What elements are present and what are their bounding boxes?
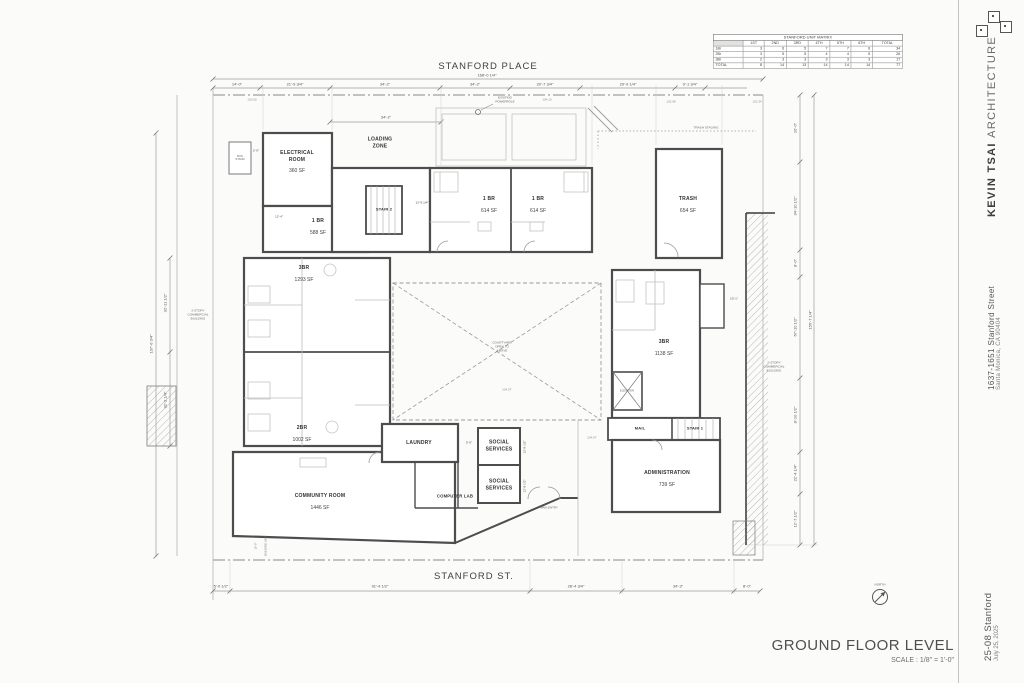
project-number: 25-08 Stanford [983, 593, 994, 661]
dim-building-line: 10'-0" [254, 542, 257, 549]
spot-elevation-5: 104.07' [502, 388, 512, 392]
room-3br-left-name: 3BR [295, 265, 314, 272]
dim-top-1: 14'-0" [232, 83, 242, 88]
room-2br: 2BR 1002 SF [293, 425, 312, 443]
sheet-titleblock: GROUND FLOOR LEVEL SCALE : 1/8" = 1'-0" [772, 637, 954, 664]
room-electrical-name: ELECTRICAL ROOM [274, 150, 320, 163]
room-social-services-1-name: SOCIAL SERVICES [484, 440, 514, 453]
spot-elevation-4: 102.34 [752, 100, 761, 104]
room-3br-left: 3BR 1293 SF [295, 265, 314, 283]
matrix-cell: 8 [743, 63, 764, 69]
dim-stair2-width: 12'-9 1/4" [415, 201, 428, 205]
dim-bottom-4: 34'-3" [673, 585, 683, 590]
dim-bottom-5: 8'-0" [743, 585, 751, 590]
dim-right-5: 8'-10 1/2" [794, 407, 799, 424]
matrix-cell: 14 [851, 63, 872, 69]
room-2br-area: 1002 SF [293, 437, 312, 444]
spot-elevation-2: 104.10 [542, 98, 551, 102]
firm-name: KEVIN TSAI ARCHITECTURE [982, 36, 1000, 217]
matrix-cell: 14 [764, 63, 786, 69]
dim-right-1: 10'-0" [794, 123, 799, 133]
dim-right-2: 34'-10 1/2" [794, 196, 799, 215]
firm-logo-icon [1000, 21, 1012, 33]
label-courtyard: COURTYARD OPEN TO ABOVE [491, 341, 513, 353]
street-label-stanford-st: STANFORD ST. [434, 571, 514, 583]
label-commercial-left: 2-STORY COMMERCIAL BUILDING [185, 309, 211, 321]
dim-left-1: 32'-11 1/2" [164, 294, 169, 313]
project-address: 1637-1651 Stanford Street Santa Monica, … [987, 286, 1002, 390]
dim-social-2: 12'-8 1/2" [523, 479, 527, 492]
dim-top-4: 34'-2" [470, 83, 480, 88]
dim-right-overall: 155'-7 1/4" [809, 310, 814, 329]
room-1br-a: 1 BR 588 SF [310, 218, 326, 236]
room-community: COMMUNITY ROOM 1446 SF [294, 493, 346, 511]
room-1br-b: 1 BR 614 SF [481, 196, 497, 214]
room-social-services-2-name: SOCIAL SERVICES [484, 479, 514, 492]
room-laundry-name: LAUNDRY [406, 440, 432, 447]
room-stair2-name: STAIR 2 [376, 207, 392, 212]
firm-name-bold: KEVIN TSAI [986, 142, 998, 217]
firm-name-light: ARCHITECTURE [986, 36, 998, 138]
project-address-line1: 1637-1651 Stanford Street [987, 286, 996, 390]
label-building-line: BUILDING LINE [264, 536, 267, 556]
room-1br-b-area: 614 SF [481, 208, 497, 215]
room-computer-lab: COMPUTER LAB [434, 494, 477, 501]
room-mail: MAIL [633, 426, 646, 433]
dim-right-4: 67'-10 1/2" [794, 317, 799, 336]
dim-top-2: 21'-9 3/4" [287, 83, 304, 88]
drawing-sheet: STANFORD PLACE STANFORD ST. 14'-0" 21'-9… [0, 0, 1024, 683]
matrix-row-total: TOTAL 8 14 13 14 14 14 77 [713, 63, 902, 69]
dim-right-6: 22'-4 1/4" [794, 465, 799, 482]
matrix-cell: 77 [872, 63, 902, 69]
room-3br-right-name: 3BR [655, 339, 674, 346]
dim-bus-stand: 2'-0" [253, 149, 259, 153]
room-1br-a-area: 588 SF [310, 230, 326, 237]
room-stair1-name: STAIR 1 [687, 426, 703, 431]
dim-top-secondary: 34'-2" [381, 116, 391, 121]
dim-top-3: 34'-2" [380, 83, 390, 88]
room-1br-b-name: 1 BR [481, 196, 497, 203]
room-electrical: ELECTRICAL ROOM 360 SF [274, 150, 320, 175]
room-1br-c-name: 1 BR [530, 196, 546, 203]
room-laundry: LAUNDRY [406, 440, 432, 447]
room-computer-lab-name: COMPUTER LAB [437, 494, 473, 500]
room-social-services-2: SOCIAL SERVICES [484, 479, 514, 492]
dim-left-2: 32'-2 1/4" [164, 392, 169, 409]
room-community-name: COMMUNITY ROOM [294, 493, 346, 500]
label-powerpole: EXISTING POWERPOLE [493, 96, 517, 104]
dim-electrical-width: 12'-4" [275, 215, 283, 219]
dim-bottom-1: 5'-0 1/2" [214, 585, 229, 590]
north-arrow-label: NORTH [875, 583, 886, 587]
project-address-line2: Santa Monica, CA 90404 [996, 286, 1002, 390]
matrix-cell: 14 [808, 63, 829, 69]
spot-elevation-6: 104.67' [587, 436, 597, 440]
dim-left-overall: 137'-6 3/4" [150, 334, 155, 353]
dim-right-7: 12'-7 1/2" [794, 511, 799, 528]
room-administration: ADMINISTRATION 739 SF [644, 470, 690, 488]
room-3br-right: 3BR 1138 SF [655, 339, 674, 357]
room-1br-c: 1 BR 614 SF [530, 196, 546, 214]
room-trash-name: TRASH [679, 196, 697, 203]
room-1br-c-area: 614 SF [530, 208, 546, 215]
street-label-stanford-place: STANFORD PLACE [438, 61, 537, 73]
project-date: July 25, 2025 [994, 593, 1000, 661]
room-1br-a-name: 1 BR [310, 218, 326, 225]
room-loading-zone-name: LOADING ZONE [363, 137, 397, 150]
room-3br-right-area: 1138 SF [655, 351, 674, 358]
label-commercial-right: 2-STORY COMMERCIAL BUILDING [761, 361, 787, 373]
room-mail-name: MAIL [635, 426, 645, 431]
dim-corridor: 5'-0" [466, 441, 472, 445]
dim-top-7: 9'-1 3/4" [683, 83, 698, 88]
spot-elevation-3: 102.98 [666, 100, 675, 104]
room-stair2: STAIR 2 [374, 207, 394, 214]
unit-matrix-table: STANFORD UNIT MATRIX 1ST 2ND 3RD 4TH 5TH… [713, 34, 903, 69]
label-trash-staging: TRASH STAGING [693, 126, 718, 130]
dim-top-overall: 168'-0 1/4" [477, 74, 496, 79]
label-main-entry: MAIN ENTRY [540, 506, 558, 510]
dim-top-5: 20'-7 3/4" [537, 83, 554, 88]
matrix-cell: 14 [830, 63, 851, 69]
room-3br-left-area: 1293 SF [295, 277, 314, 284]
room-electrical-area: 360 SF [274, 168, 320, 175]
room-administration-area: 739 SF [644, 482, 690, 489]
room-trash: TRASH 654 SF [679, 196, 697, 214]
matrix-cell: TOTAL [713, 63, 743, 69]
dim-bottom-3: 28'-4 3/4" [568, 585, 585, 590]
room-administration-name: ADMINISTRATION [644, 470, 690, 477]
dim-top-6: 29'-9 1/4" [620, 83, 637, 88]
label-elevator: ELEVATOR [620, 389, 634, 392]
sheet-scale: SCALE : 1/8" = 1'-0" [772, 657, 954, 664]
room-2br-name: 2BR [293, 425, 312, 432]
sheet-title: GROUND FLOOR LEVEL [772, 637, 954, 654]
titleblock-divider [958, 0, 959, 683]
room-community-area: 1446 SF [294, 505, 346, 512]
dim-right-3br: 10'-1" [730, 297, 738, 301]
project-number-block: 25-08 Stanford July 25, 2025 [983, 593, 1000, 661]
room-trash-area: 654 SF [679, 208, 697, 215]
room-stair1: STAIR 1 [685, 426, 705, 433]
dim-social-1: 12'-8 1/2" [523, 440, 527, 453]
dim-right-3: 8'-0" [794, 259, 799, 267]
label-bus-stand: BUS STAND [235, 155, 246, 162]
matrix-cell: 13 [786, 63, 808, 69]
dim-bottom-2: 91'-4 1/2" [372, 585, 389, 590]
room-social-services-1: SOCIAL SERVICES [484, 440, 514, 453]
spot-elevation-1: 100.00 [247, 98, 256, 102]
room-loading-zone: LOADING ZONE [363, 137, 397, 150]
firm-logo-icon [988, 11, 1000, 23]
